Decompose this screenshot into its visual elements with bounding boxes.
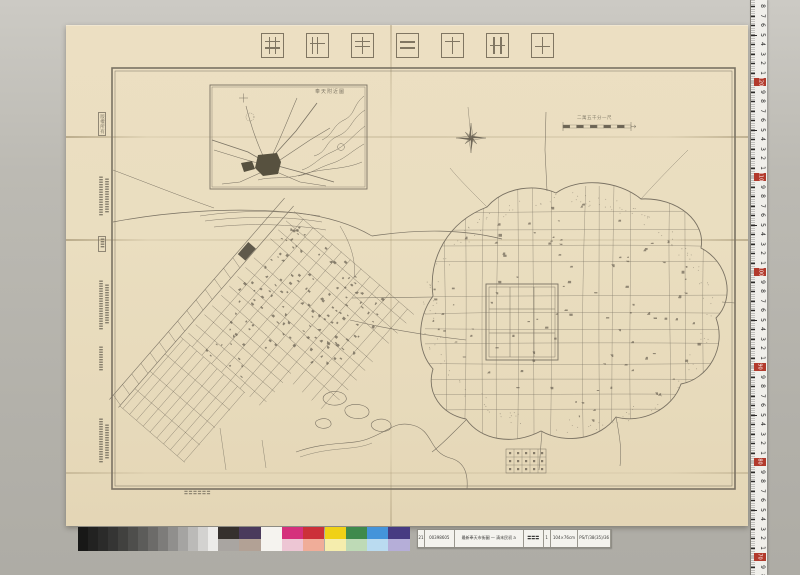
ruler-digit: 3 — [759, 526, 765, 532]
ruler-tick — [751, 253, 755, 254]
grayscale-calibration-bar — [78, 527, 218, 551]
ruler-tick — [751, 101, 755, 102]
ruler-digit: 9 — [759, 184, 765, 190]
ruler-digit: 6 — [759, 307, 765, 313]
scanned-map-viewport: 版權所有〓〓〓〓〓〓〓〓〓〓〓〓〓〓〓〓〓〓〓〓〓〓〓〓〓〓〓〓〓〓〓〓〓〓〓〓… — [0, 0, 800, 575]
ruler-digit: 2 — [759, 60, 765, 66]
ruler-tick — [751, 282, 755, 283]
catalog-label: 2100398605最新奉天市街圖 一 清末民初 a〓〓〓1104×76cmPS… — [417, 529, 612, 548]
ruler-digit: 7 — [759, 488, 765, 494]
ruler-tick — [751, 73, 755, 74]
catalog-label-cell: 〓〓〓 — [524, 530, 544, 547]
ruler-digit: 6 — [759, 117, 765, 123]
color-patch — [239, 527, 260, 539]
ruler-tick — [751, 54, 755, 55]
ruler-tick — [751, 244, 755, 245]
grayscale-step — [78, 527, 88, 551]
ruler-digit: 8 — [759, 193, 765, 199]
gate-roads — [432, 112, 735, 470]
ruler-decade-label: 120 — [754, 78, 766, 86]
ruler-tick — [751, 234, 755, 235]
ruler-tick — [751, 548, 755, 549]
ruler-tick — [751, 215, 755, 216]
inset-map — [210, 85, 367, 189]
color-patch — [261, 527, 282, 539]
color-patch — [367, 539, 388, 551]
grayscale-step — [108, 527, 118, 551]
new-town-grid — [109, 198, 415, 514]
ruler-digit: 1 — [759, 545, 765, 551]
ruler-tick — [751, 500, 755, 501]
ruler-digit: 2 — [759, 345, 765, 351]
ruler-tick — [751, 158, 755, 159]
grayscale-step — [168, 527, 178, 551]
color-patch — [218, 527, 239, 539]
ruler-digit: 1 — [759, 450, 765, 456]
map-frame — [112, 68, 735, 489]
ruler-digit: 9 — [759, 469, 765, 475]
ruler-tick — [751, 386, 755, 387]
color-patch — [388, 539, 409, 551]
color-patch-column — [388, 527, 409, 551]
ruler-digit: 7 — [759, 203, 765, 209]
color-patch — [388, 527, 409, 539]
ruler-tick — [751, 443, 755, 444]
color-patch-column — [367, 527, 388, 551]
map-artwork — [0, 0, 800, 575]
color-patch-column — [239, 527, 260, 551]
color-patch-column — [303, 527, 324, 551]
catalog-label-cell: 最新奉天市街圖 一 清末民初 a — [455, 530, 524, 547]
ruler-tick — [751, 396, 755, 397]
ruler-tick — [751, 206, 755, 207]
color-patch — [303, 539, 324, 551]
ruler-tick — [751, 339, 755, 340]
ruler-digit: 3 — [759, 146, 765, 152]
color-patch — [303, 527, 324, 539]
ruler-decade-label: 80 — [754, 458, 766, 466]
ruler-tick — [751, 35, 757, 36]
ruler-digit: 3 — [759, 51, 765, 57]
ruler-digit: 5 — [759, 507, 765, 513]
ruler-digit: 9 — [759, 374, 765, 380]
color-patch — [346, 539, 367, 551]
ruler-digit: 2 — [759, 440, 765, 446]
outer-wall — [421, 183, 728, 440]
compass-rose-icon — [456, 107, 486, 153]
ruler-tick — [751, 291, 755, 292]
color-patch — [346, 527, 367, 539]
color-patch — [282, 539, 303, 551]
color-patch — [218, 539, 239, 551]
ruler-decade-label: 100 — [754, 268, 766, 276]
color-patch-column — [282, 527, 303, 551]
ruler-digit: 8 — [759, 288, 765, 294]
ruler-tick — [751, 453, 755, 454]
ruler-tick — [751, 16, 755, 17]
color-patch-column — [346, 527, 367, 551]
ruler-tick — [751, 120, 755, 121]
grayscale-step — [158, 527, 168, 551]
grayscale-step — [198, 527, 208, 551]
ruler-decade-label: 110 — [754, 173, 766, 181]
color-patch — [261, 539, 282, 551]
ruler-tick — [751, 415, 757, 416]
ruler-digit: 4 — [759, 41, 765, 47]
ruler-tick — [751, 63, 755, 64]
ruler-tick — [751, 310, 755, 311]
color-patch — [325, 527, 346, 539]
ruler-digit: 6 — [759, 212, 765, 218]
ruler-tick — [751, 358, 755, 359]
grayscale-step — [128, 527, 138, 551]
grayscale-step — [148, 527, 158, 551]
inset-city-blob — [255, 153, 281, 176]
ruler-tick — [751, 567, 755, 568]
railway-strip — [109, 198, 293, 407]
ruler-tick — [751, 139, 755, 140]
ruler-digit: 3 — [759, 336, 765, 342]
ruler-digit: 1 — [759, 165, 765, 171]
ruler-tick — [751, 405, 755, 406]
ruler-tick — [751, 491, 755, 492]
color-patch — [367, 527, 388, 539]
ruler-digit: 8 — [759, 98, 765, 104]
ruler-tick — [751, 111, 755, 112]
grayscale-step — [178, 527, 188, 551]
ruler-tick — [751, 481, 755, 482]
ruler-tick — [751, 6, 755, 7]
ruler-tick — [751, 168, 755, 169]
ruler-tick — [751, 472, 755, 473]
ruler-tick — [751, 434, 755, 435]
ruler-digit: 9 — [759, 564, 765, 570]
ruler-tick — [751, 196, 755, 197]
scanner-ruler: 9876543211209876543211109876543211009876… — [750, 0, 767, 575]
ruler-decade-label: 90 — [754, 363, 766, 371]
ruler-digit: 7 — [759, 393, 765, 399]
ruler-digit: 1 — [759, 260, 765, 266]
color-patch-column — [325, 527, 346, 551]
ruler-tick — [751, 538, 755, 539]
ruler-tick — [751, 130, 757, 131]
ruler-digit: 5 — [759, 222, 765, 228]
ruler-digit: 5 — [759, 317, 765, 323]
ruler-tick — [751, 149, 755, 150]
ruler-digit: 5 — [759, 412, 765, 418]
color-patch — [282, 527, 303, 539]
ruler-digit: 8 — [759, 3, 765, 9]
grayscale-step — [208, 527, 218, 551]
ruler-mm-ticks — [751, 0, 755, 575]
ruler-digit: 7 — [759, 13, 765, 19]
ruler-tick — [751, 329, 755, 330]
ruler-digit: 8 — [759, 383, 765, 389]
ruler-tick — [751, 320, 757, 321]
ruler-digit: 3 — [759, 431, 765, 437]
ruler-digit: 4 — [759, 136, 765, 142]
ruler-digit: 5 — [759, 32, 765, 38]
ruler-digit: 5 — [759, 127, 765, 133]
ruler-tick — [751, 225, 757, 226]
color-patch — [325, 539, 346, 551]
color-patch-column — [218, 527, 239, 551]
ruler-digit: 6 — [759, 402, 765, 408]
ruler-tick — [751, 519, 755, 520]
grayscale-step — [98, 527, 108, 551]
ruler-digit: 1 — [759, 70, 765, 76]
ruler-digit: 9 — [759, 89, 765, 95]
ruler-digit: 8 — [759, 478, 765, 484]
color-patch — [239, 539, 260, 551]
grayscale-step — [138, 527, 148, 551]
ruler-digit: 6 — [759, 497, 765, 503]
ruler-digit: 2 — [759, 535, 765, 541]
pond — [323, 391, 346, 405]
ruler-digit: 6 — [759, 22, 765, 28]
ruler-digit: 4 — [759, 421, 765, 427]
ruler-digit: 2 — [759, 155, 765, 161]
ruler-tick — [751, 263, 755, 264]
grayscale-step — [88, 527, 98, 551]
catalog-label-cell: 21 — [418, 530, 425, 547]
legend-table — [506, 449, 546, 473]
scale-bar — [563, 122, 636, 131]
catalog-label-cell: 104×76cm — [551, 530, 579, 547]
grayscale-step — [118, 527, 128, 551]
ruler-decade-label: 70 — [754, 553, 766, 561]
ruler-tick — [751, 424, 755, 425]
catalog-label-cell: PS/T/38(35)/36 — [578, 530, 611, 547]
ruler-tick — [751, 348, 755, 349]
ruler-tick — [751, 510, 757, 511]
ruler-tick — [751, 187, 755, 188]
ruler-digit: 4 — [759, 326, 765, 332]
ruler-digit: 4 — [759, 231, 765, 237]
catalog-label-cell: 00398605 — [425, 530, 455, 547]
ruler-tick — [751, 44, 755, 45]
ruler-tick — [751, 377, 755, 378]
ruler-digit: 2 — [759, 250, 765, 256]
color-patch-column — [261, 527, 282, 551]
ruler-digit: 7 — [759, 298, 765, 304]
ruler-digit: 4 — [759, 516, 765, 522]
ruler-digit: 1 — [759, 355, 765, 361]
ruler-tick — [751, 25, 755, 26]
grayscale-step — [188, 527, 198, 551]
ruler-tick — [751, 529, 755, 530]
ruler-tick — [751, 92, 755, 93]
ruler-digit: 7 — [759, 108, 765, 114]
ruler-tick — [751, 301, 755, 302]
catalog-label-cell: 1 — [544, 530, 551, 547]
ruler-digit: 3 — [759, 241, 765, 247]
ruler-digit: 9 — [759, 279, 765, 285]
station-block — [238, 242, 256, 261]
